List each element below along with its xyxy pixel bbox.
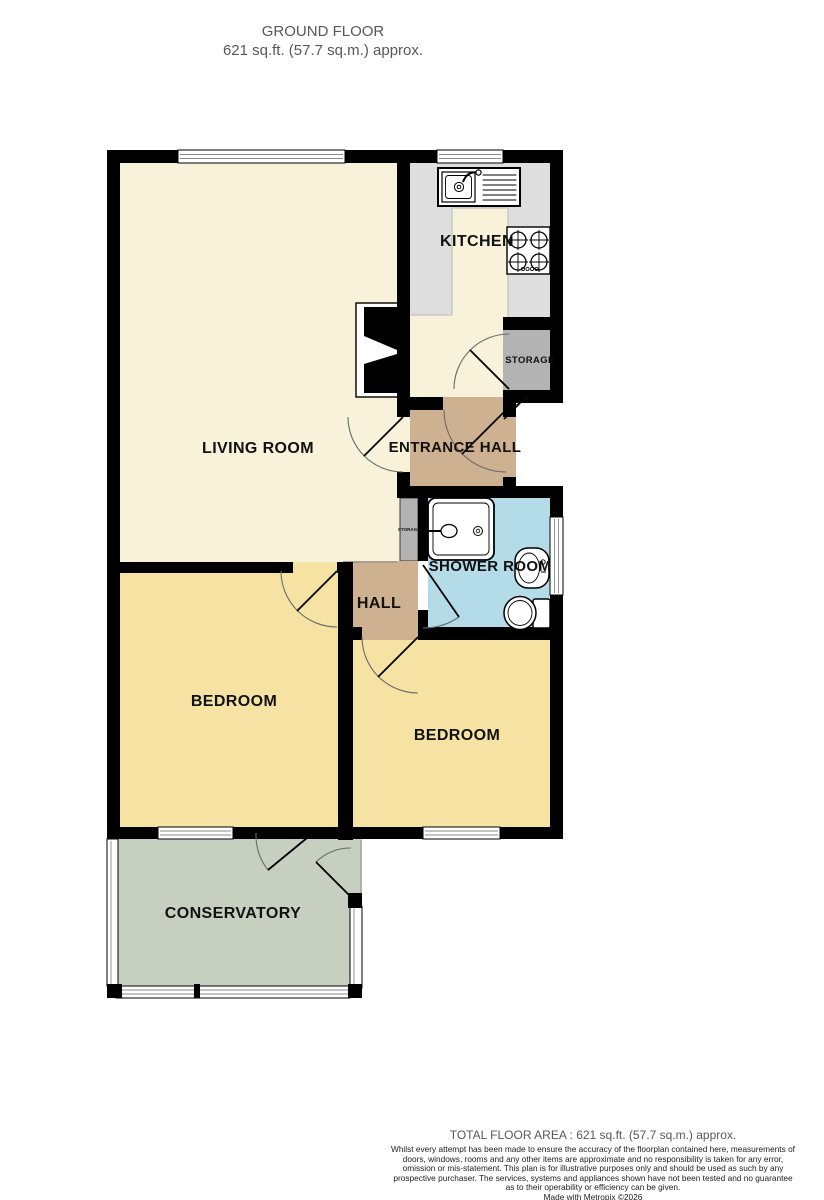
entrance-hall-label: ENTRANCE HALL	[389, 439, 522, 456]
toilet-icon	[504, 597, 550, 630]
plan-footer: TOTAL FLOOR AREA : 621 sq.ft. (57.7 sq.m…	[390, 1128, 796, 1200]
floorplan-page: GROUND FLOOR 621 sq.ft. (57.7 sq.m.) app…	[0, 0, 824, 1200]
window-bedroom-right	[423, 827, 500, 839]
bedroom-right-label: BEDROOM	[414, 727, 500, 744]
kitchen-floor-strip	[452, 208, 508, 315]
shower-room-label: SHOWER ROOM	[429, 558, 552, 575]
storage-label: STORAGE	[505, 355, 555, 366]
credit-text: Made with Metropix ©2026	[390, 1193, 796, 1200]
window-living-room	[178, 150, 345, 163]
kitchen-floor-lower	[410, 315, 508, 397]
hall-label: HALL	[357, 595, 401, 612]
shower-icon	[428, 498, 494, 560]
storage-small-label: STORAGE	[398, 527, 420, 532]
floorplan-drawing: LIVING ROOM KITCHEN STORAGE ENTRANCE HAL…	[0, 0, 824, 1200]
window-kitchen	[437, 150, 503, 163]
kitchen-sink-icon	[438, 168, 520, 206]
conservatory-post	[348, 984, 362, 998]
kitchen-hall-opening	[443, 397, 503, 410]
bedroom-left-label: BEDROOM	[191, 693, 277, 710]
chimney-breast	[356, 303, 400, 397]
disclaimer-text: Whilst every attempt has been made to en…	[390, 1145, 796, 1193]
window-bedroom-left	[158, 827, 233, 839]
conservatory-mullion	[194, 984, 200, 998]
conservatory-post	[107, 984, 122, 998]
total-floor-area: TOTAL FLOOR AREA : 621 sq.ft. (57.7 sq.m…	[390, 1128, 796, 1142]
kitchen-label: KITCHEN	[440, 233, 514, 250]
window-shower-room	[550, 517, 563, 595]
living-room-label: LIVING ROOM	[202, 440, 314, 457]
conservatory-label: CONSERVATORY	[165, 905, 301, 922]
